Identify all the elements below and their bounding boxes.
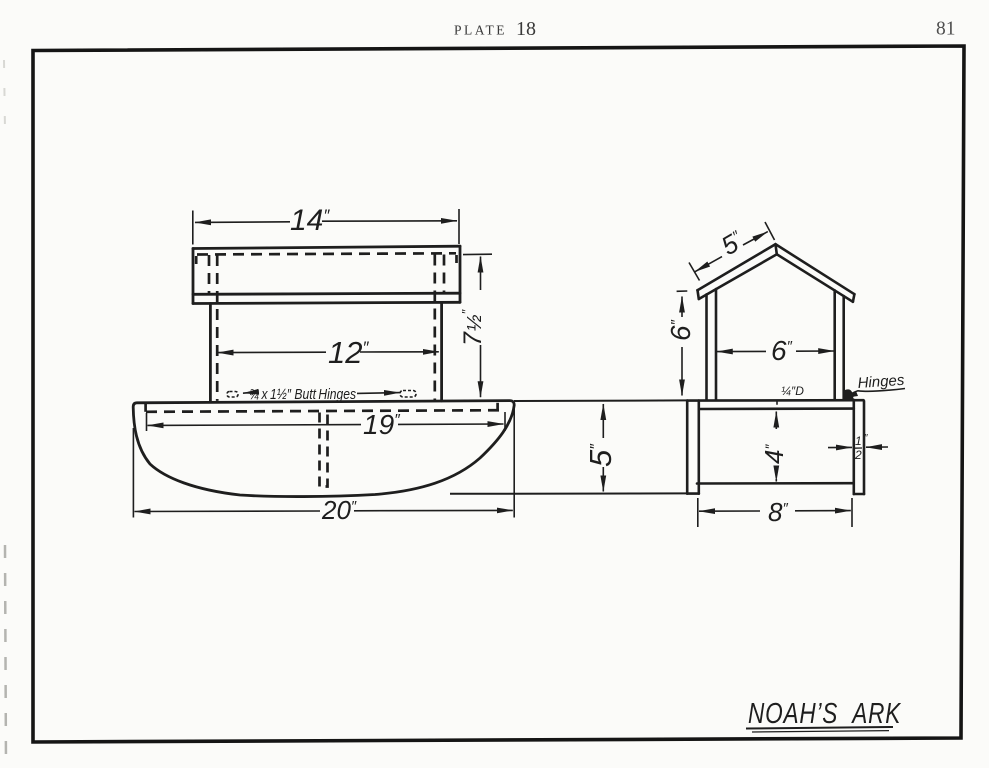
svg-text:81: 81 xyxy=(936,19,956,40)
svg-text:18: 18 xyxy=(516,18,536,40)
svg-text:NOAH’S ARK: NOAH’S ARK xyxy=(748,696,902,729)
svg-text:¾ x 1½″ Butt Hinges: ¾ x 1½″ Butt Hinges xyxy=(249,387,356,403)
svg-text:Hinges: Hinges xyxy=(857,372,905,392)
svg-text:2: 2 xyxy=(854,448,862,462)
svg-text:PLATE: PLATE xyxy=(454,23,507,38)
svg-text:″: ″ xyxy=(864,433,868,444)
svg-text:¼″D: ¼″D xyxy=(781,384,804,398)
svg-text:7½″: 7½″ xyxy=(459,309,487,346)
svg-text:1: 1 xyxy=(855,434,862,448)
